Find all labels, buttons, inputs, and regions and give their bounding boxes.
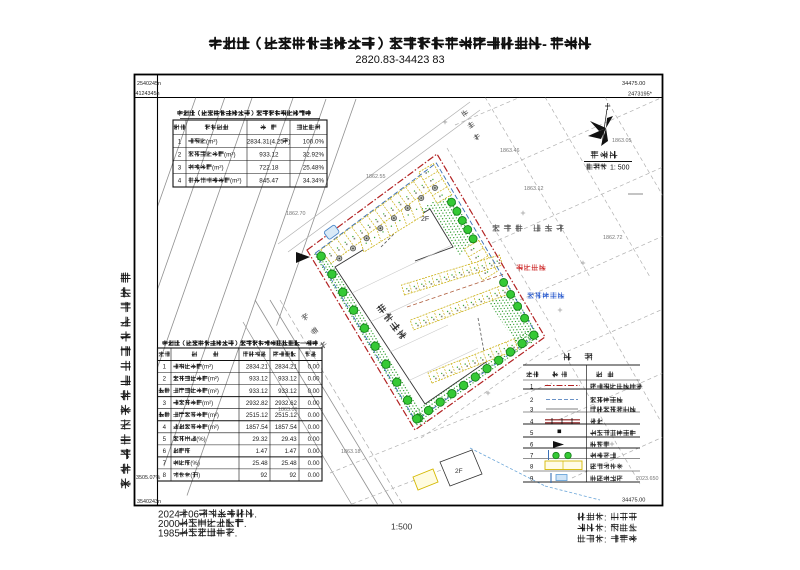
svg-text:1863.18: 1863.18 [341,449,361,455]
svg-text:1857.54: 1857.54 [275,424,298,431]
svg-text:(m²): (m²) [224,151,236,158]
svg-text:2473195*: 2473195* [628,92,653,98]
svg-text:1862.55: 1862.55 [366,174,386,180]
svg-text:1863.12: 1863.12 [524,186,544,192]
svg-text:1:500: 1:500 [391,522,413,532]
svg-text:0.00: 0.00 [308,460,320,467]
svg-text:933.12: 933.12 [278,388,297,395]
svg-text:1.47: 1.47 [285,448,297,455]
svg-text:2515.12: 2515.12 [246,412,269,419]
svg-text:2932.62: 2932.62 [275,400,298,407]
svg-text:2820.83-34423 83: 2820.83-34423 83 [355,54,444,66]
svg-text:1863.46: 1863.46 [500,148,520,154]
svg-text:3: 3 [178,164,182,171]
svg-text:0.00: 0.00 [308,412,320,419]
svg-text:92: 92 [261,472,268,479]
svg-text:(m²): (m²) [208,412,219,419]
svg-text:4: 4 [178,178,182,185]
svg-text:): ) [198,472,200,479]
svg-text:2932.82: 2932.82 [246,400,269,407]
svg-text:0.00: 0.00 [308,388,320,395]
svg-text:0.00: 0.00 [308,424,320,431]
svg-text:25.48: 25.48 [252,460,268,467]
svg-text:32.92%: 32.92% [303,151,325,158]
svg-text::: : [604,534,607,544]
svg-text:(m²): (m²) [230,178,242,185]
svg-text:0.00: 0.00 [308,376,320,383]
svg-text:0.00: 0.00 [308,436,320,443]
svg-text:(%): (%) [196,436,205,443]
svg-text:(m²): (m²) [202,400,213,407]
svg-text:29.32: 29.32 [252,436,268,443]
svg-text:1857.54: 1857.54 [246,424,269,431]
svg-text:25.48: 25.48 [281,460,297,467]
svg-text:1: 500: 1: 500 [610,165,630,172]
svg-text:2834.21: 2834.21 [246,364,269,371]
svg-text:4124345n: 4124345n [136,91,160,97]
svg-text:(m²): (m²) [202,364,213,371]
svg-text:1985: 1985 [158,528,180,539]
svg-text:.: . [254,509,257,520]
svg-text:933.12: 933.12 [249,388,268,395]
svg-text:29.43: 29.43 [281,436,297,443]
svg-text:2F: 2F [455,468,463,475]
svg-text:): ) [288,138,290,145]
svg-text:34.34%: 34.34% [303,178,325,185]
svg-text:3540243n: 3540243n [137,499,161,505]
svg-text:34475.00: 34475.00 [622,81,645,87]
svg-text:3505.07%: 3505.07% [136,475,160,481]
svg-text:933.12: 933.12 [259,151,279,158]
svg-text:2515.12: 2515.12 [275,412,298,419]
svg-text::: : [604,523,607,533]
svg-text:1863.05: 1863.05 [612,138,632,144]
svg-text:933.12: 933.12 [249,376,268,383]
svg-text:933.12: 933.12 [278,376,297,383]
svg-text:1862.70: 1862.70 [286,211,306,217]
svg-text:2540245n: 2540245n [137,81,161,87]
svg-text:1862.72: 1862.72 [603,235,623,241]
svg-text:(m²): (m²) [208,424,219,431]
svg-text:-: - [542,37,547,53]
svg-text:(: ( [190,472,192,479]
svg-text:2F: 2F [421,216,429,223]
svg-text:.: . [244,519,247,530]
svg-text:2023.650: 2023.650 [636,476,658,482]
svg-text:92: 92 [290,472,297,479]
svg-text:0.00: 0.00 [308,364,320,371]
svg-text:2: 2 [178,151,182,158]
svg-text:1: 1 [178,138,182,145]
svg-text:0.00: 0.00 [308,472,320,479]
svg-text:(m²): (m²) [212,164,224,171]
svg-text:.: . [235,528,238,539]
svg-text:(m²): (m²) [208,376,219,383]
svg-text:100.0%: 100.0% [303,138,325,145]
svg-text:2834.31(4.25: 2834.31(4.25 [247,138,285,145]
svg-text:0.00: 0.00 [308,448,320,455]
svg-text:845.47: 845.47 [259,178,279,185]
svg-text:2834.21: 2834.21 [275,364,298,371]
svg-text:(%): (%) [190,460,199,467]
svg-text:1.47: 1.47 [256,448,268,455]
svg-text:25.48%: 25.48% [303,164,325,171]
svg-text:722.18: 722.18 [259,164,279,171]
svg-text:0.00: 0.00 [308,400,320,407]
svg-text::: : [604,512,607,522]
svg-text:(m²): (m²) [208,388,219,395]
svg-text:06: 06 [188,509,199,520]
svg-text:(m²): (m²) [206,138,218,145]
svg-text:34475.00: 34475.00 [622,498,645,504]
